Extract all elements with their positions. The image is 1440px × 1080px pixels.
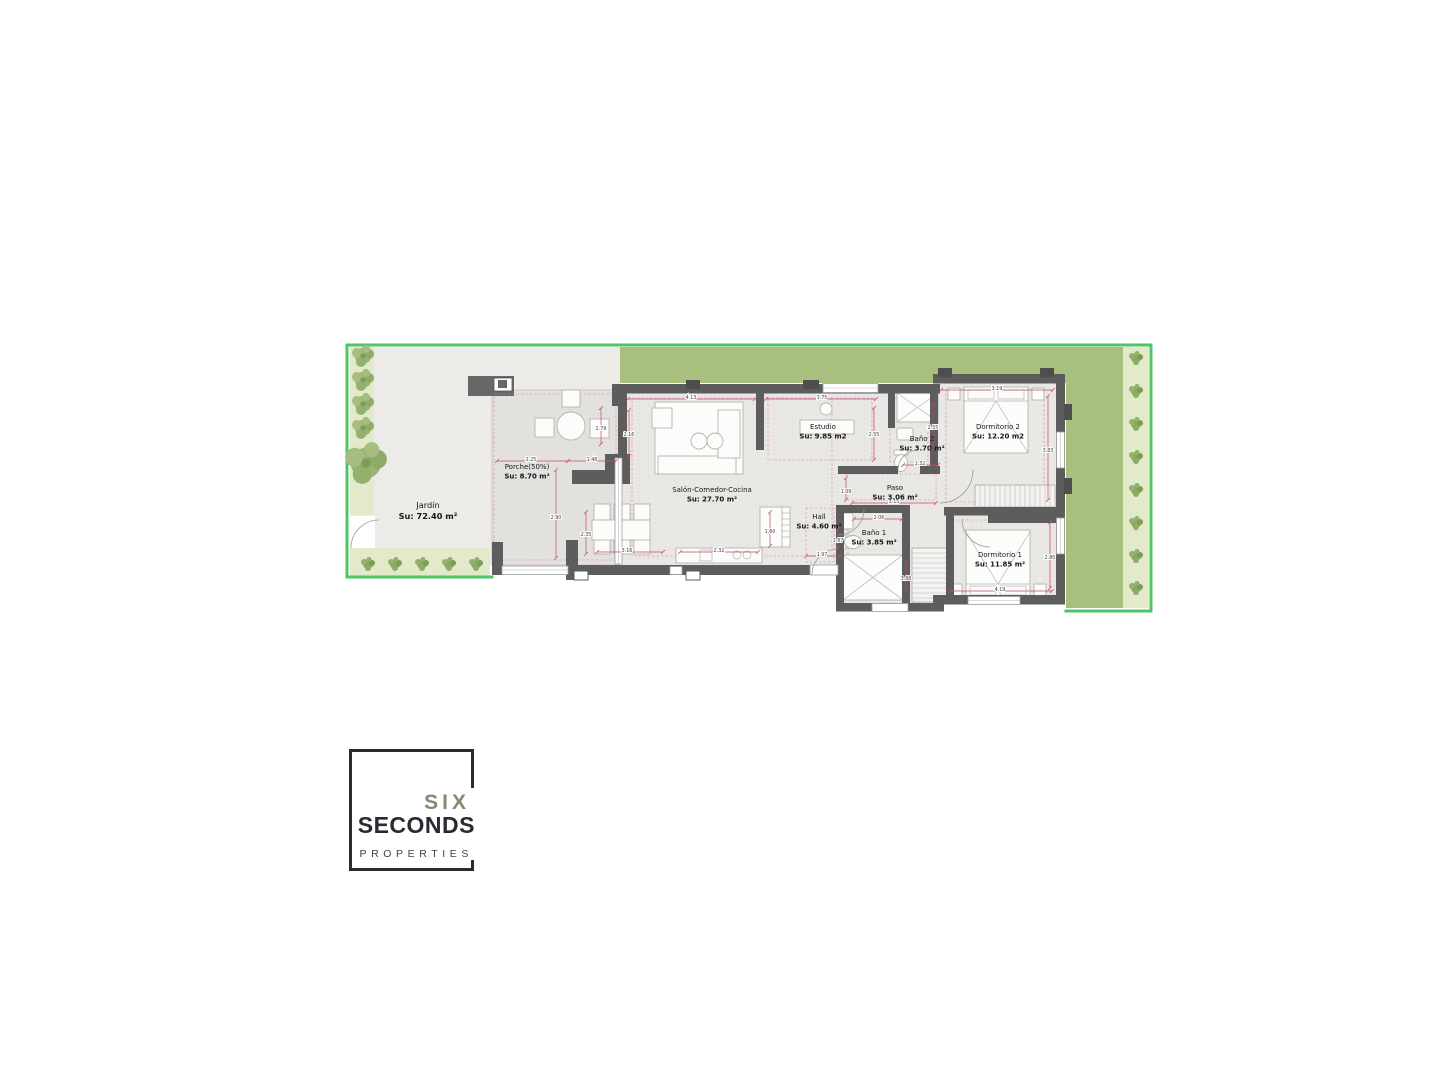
room-area-estudio: Su: 9.85 m2 <box>799 433 846 441</box>
room-name-paso: Paso <box>887 484 903 492</box>
svg-text:2.90: 2.90 <box>551 515 562 521</box>
svg-text:1.48: 1.48 <box>587 457 598 463</box>
staircase <box>975 485 1055 507</box>
floor-plan-image: 4.133.752.552.553.193.831.322.251.482.79… <box>0 0 1440 1080</box>
room-area-hall: Su: 4.60 m² <box>796 523 841 531</box>
agency-logo: SIX SECONDS PROPERTIES <box>349 749 474 871</box>
svg-text:1.60: 1.60 <box>765 529 776 535</box>
svg-text:4.19: 4.19 <box>995 587 1006 593</box>
room-label-porche: Porche(50%)Su: 8.70 m² <box>504 463 549 481</box>
room-name-dorm2: Dormitorio 2 <box>976 423 1020 431</box>
window <box>1057 518 1065 554</box>
room-area-dorm1: Su: 11.85 m² <box>975 561 1025 569</box>
svg-text:2.35: 2.35 <box>581 532 592 538</box>
logo-word-seconds: SECONDS <box>358 814 475 837</box>
svg-text:2.06: 2.06 <box>874 515 885 521</box>
window <box>502 566 568 575</box>
room-area-porche: Su: 8.70 m² <box>504 473 549 481</box>
logo-word-properties: PROPERTIES <box>360 849 474 860</box>
room-name-bano2: Baño 2 <box>910 435 935 443</box>
svg-text:3.75: 3.75 <box>817 395 828 401</box>
svg-text:2.16: 2.16 <box>624 432 635 438</box>
logo-word-six: SIX <box>424 792 470 813</box>
page-background: 4.133.752.552.553.193.831.322.251.482.79… <box>0 0 1440 1080</box>
svg-text:3.16: 3.16 <box>622 548 633 554</box>
room-area-paso: Su: 3.06 m² <box>872 494 917 502</box>
rear-door-opening <box>872 604 908 612</box>
room-area-bano1: Su: 3.85 m² <box>851 539 896 547</box>
room-area-bano2: Su: 3.70 m² <box>899 445 944 453</box>
room-label-dorm1: Dormitorio 1Su: 11.85 m² <box>975 551 1025 569</box>
entrance-door-opening <box>810 565 838 575</box>
window <box>1057 432 1065 468</box>
window <box>670 567 682 575</box>
svg-text:3.83: 3.83 <box>1043 448 1054 454</box>
room-name-dorm1: Dormitorio 1 <box>978 551 1022 559</box>
svg-text:2.80: 2.80 <box>1045 555 1056 561</box>
svg-text:2.79: 2.79 <box>596 426 607 432</box>
garden-storage-unit <box>468 376 514 396</box>
room-name-jardin: Jardín <box>415 500 439 510</box>
svg-text:2.25: 2.25 <box>526 457 537 463</box>
window <box>968 597 1020 605</box>
room-name-porche: Porche(50%) <box>505 463 550 471</box>
room-name-salon: Salón-Comedor-Cocina <box>672 486 752 494</box>
room-label-dorm2: Dormitorio 2Su: 12.20 m2 <box>972 423 1024 441</box>
svg-text:1.88: 1.88 <box>901 576 912 582</box>
svg-text:2.55: 2.55 <box>869 432 880 438</box>
svg-text:4.13: 4.13 <box>686 395 697 401</box>
svg-text:3.19: 3.19 <box>992 386 1003 392</box>
window <box>823 384 878 393</box>
svg-text:2.55: 2.55 <box>928 425 939 431</box>
sofa-group <box>652 402 743 474</box>
svg-text:1.87: 1.87 <box>833 538 844 544</box>
svg-text:2.32: 2.32 <box>714 548 725 554</box>
staircase <box>912 548 948 602</box>
room-name-bano1: Baño 1 <box>862 529 887 537</box>
room-name-hall: Hall <box>812 513 825 521</box>
room-area-jardin: Su: 72.40 m² <box>399 511 458 521</box>
svg-text:1.09: 1.09 <box>841 489 852 495</box>
svg-text:1.32: 1.32 <box>915 461 926 467</box>
svg-text:1.97: 1.97 <box>817 552 828 558</box>
room-area-salon: Su: 27.70 m² <box>687 496 737 504</box>
room-name-estudio: Estudio <box>810 423 836 431</box>
room-area-dorm2: Su: 12.20 m2 <box>972 433 1024 441</box>
